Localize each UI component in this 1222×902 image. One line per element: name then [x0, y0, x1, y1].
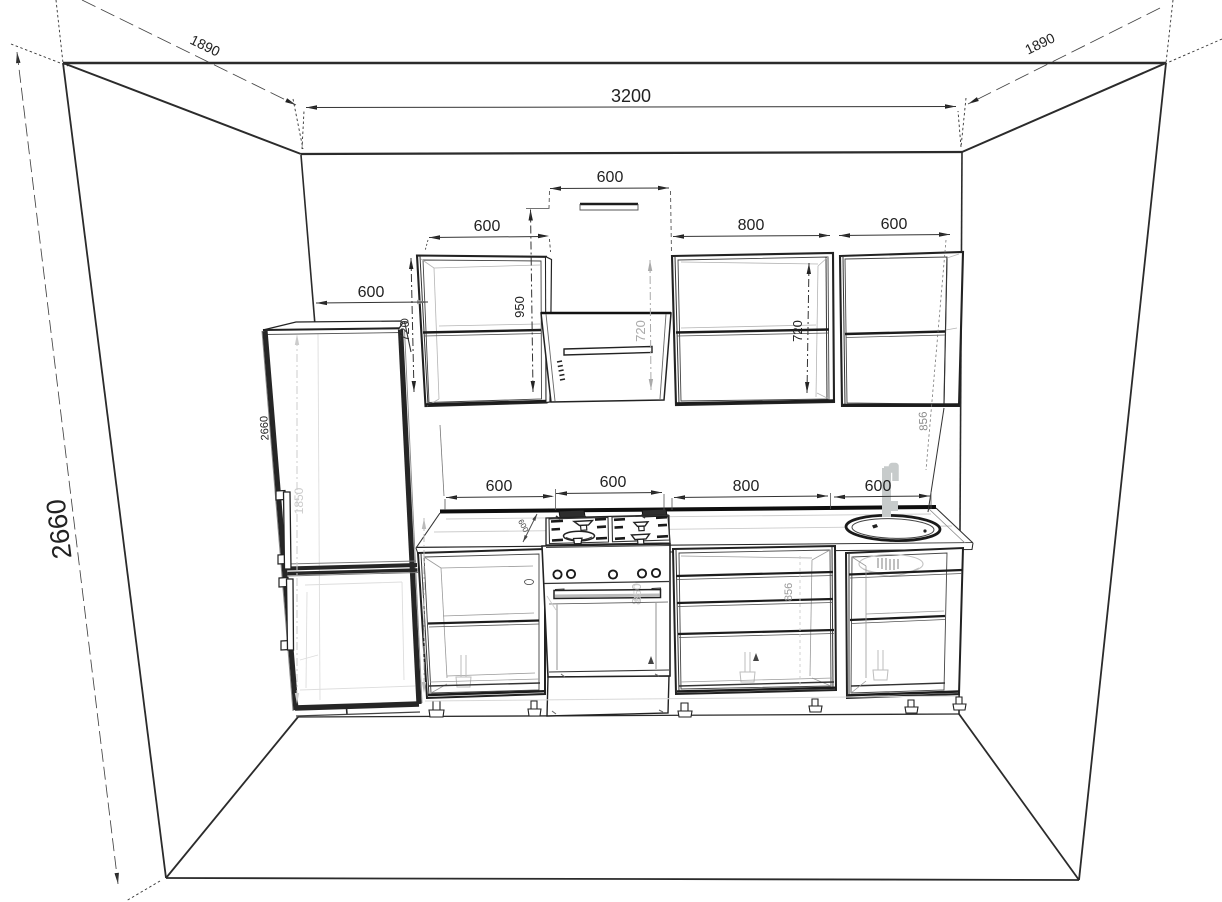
svg-text:600: 600 [597, 169, 624, 186]
svg-text:600: 600 [486, 478, 513, 495]
svg-text:720: 720 [633, 320, 648, 342]
svg-text:950: 950 [512, 296, 527, 318]
svg-text:800: 800 [738, 217, 765, 234]
svg-text:856: 856 [783, 583, 795, 601]
svg-text:850: 850 [632, 584, 644, 602]
svg-text:600: 600 [600, 474, 627, 491]
svg-text:600: 600 [474, 218, 501, 235]
svg-text:3200: 3200 [611, 86, 651, 106]
svg-text:856: 856 [918, 411, 931, 431]
svg-text:600: 600 [358, 284, 385, 301]
svg-text:720: 720 [398, 321, 412, 342]
svg-text:600: 600 [865, 478, 892, 495]
svg-text:1850: 1850 [292, 487, 306, 514]
svg-text:720: 720 [790, 320, 805, 342]
svg-text:800: 800 [733, 478, 760, 495]
svg-text:2660: 2660 [258, 416, 271, 441]
svg-text:600: 600 [881, 216, 908, 233]
